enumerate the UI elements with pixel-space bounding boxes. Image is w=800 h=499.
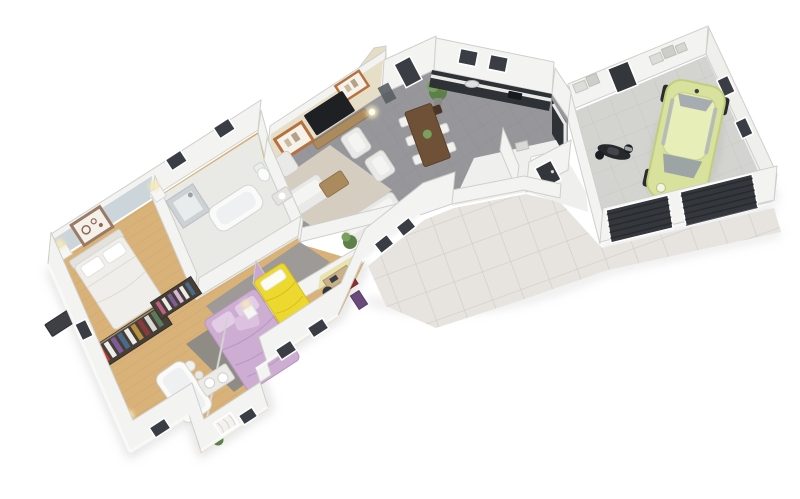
floorplan-svg xyxy=(0,0,800,499)
lamp-yellow-room xyxy=(242,300,251,309)
garage xyxy=(566,26,777,276)
floorplan-render xyxy=(0,0,800,499)
lamp-master-2 xyxy=(149,181,159,191)
cushion xyxy=(195,371,203,379)
kitchen-window-1 xyxy=(458,48,479,66)
floor-lamp-living xyxy=(366,106,378,118)
kitchen-window-2 xyxy=(488,54,509,72)
kitchen-sink xyxy=(465,81,479,88)
